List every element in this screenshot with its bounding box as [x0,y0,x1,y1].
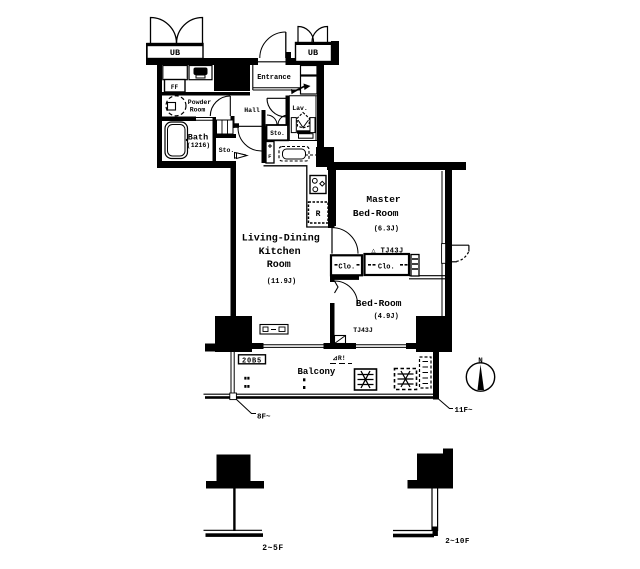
svg-text:(6.3J): (6.3J) [374,226,399,234]
svg-text:(1216): (1216) [187,142,210,149]
svg-text:Clo.: Clo. [338,263,355,271]
svg-text:Bed-Room: Bed-Room [356,298,402,309]
svg-text:20B5: 20B5 [242,357,262,365]
svg-text:Room: Room [190,106,206,113]
svg-text:Room: Room [267,260,291,271]
svg-text:FF: FF [171,84,179,91]
svg-text:TJ43J: TJ43J [353,327,373,334]
svg-text:Sto.: Sto. [270,130,284,137]
svg-text:⊿R!: ⊿R! [332,355,345,362]
svg-text:Entrance: Entrance [257,74,291,82]
svg-text:2~10F: 2~10F [445,538,470,546]
svg-text:Clo.: Clo. [378,263,395,271]
svg-text:Hall: Hall [244,107,260,114]
svg-text:Bed-Room: Bed-Room [353,208,399,219]
svg-text:Master: Master [366,194,401,205]
svg-text:Lav.: Lav. [292,105,308,112]
svg-text:(4.9J): (4.9J) [374,313,399,321]
svg-text:2~5F: 2~5F [262,544,284,553]
svg-text:Living-Dining: Living-Dining [242,233,320,245]
svg-text:Kitchen: Kitchen [259,246,301,258]
svg-text:8F~: 8F~ [257,414,271,422]
svg-text:UB: UB [308,48,318,58]
svg-text:N: N [478,358,483,366]
svg-text:UB: UB [170,48,180,58]
svg-text:R: R [316,210,321,219]
svg-text:Powder: Powder [188,99,212,106]
svg-text:Sto.: Sto. [219,147,235,154]
svg-text:(11.9J): (11.9J) [267,278,296,286]
svg-text:Bath: Bath [188,133,208,143]
svg-text:Balcony: Balcony [297,367,335,377]
svg-text:11F~: 11F~ [455,407,474,415]
svg-text:F: F [268,153,271,160]
